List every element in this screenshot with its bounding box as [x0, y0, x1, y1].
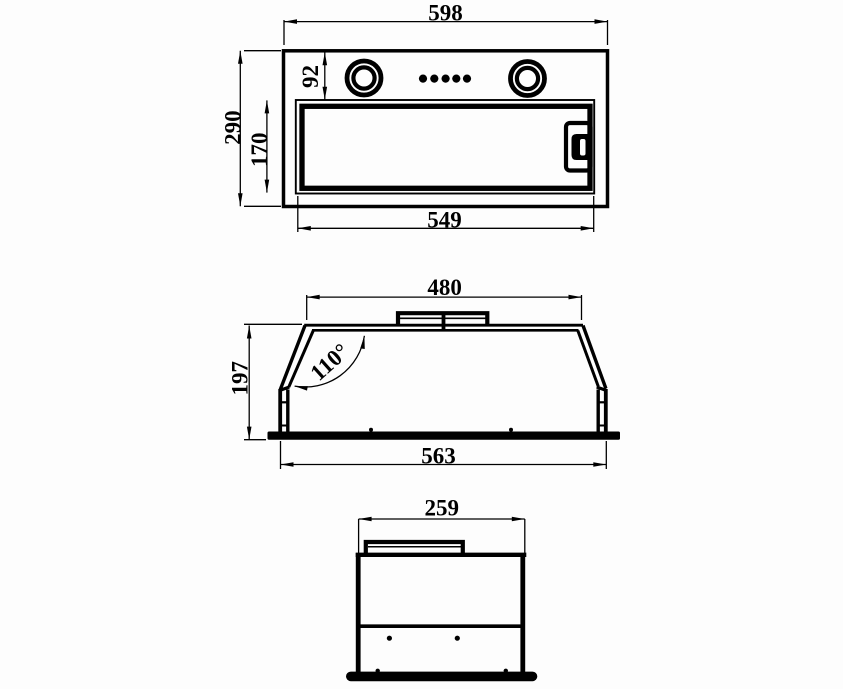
svg-text:480: 480	[427, 275, 462, 300]
svg-text:549: 549	[427, 207, 462, 232]
svg-text:197: 197	[228, 361, 253, 396]
svg-text:598: 598	[428, 0, 463, 25]
svg-text:563: 563	[421, 444, 456, 469]
svg-text:290: 290	[221, 110, 246, 145]
svg-text:170: 170	[247, 132, 272, 167]
svg-text:92: 92	[298, 65, 323, 88]
svg-text:259: 259	[424, 496, 459, 521]
